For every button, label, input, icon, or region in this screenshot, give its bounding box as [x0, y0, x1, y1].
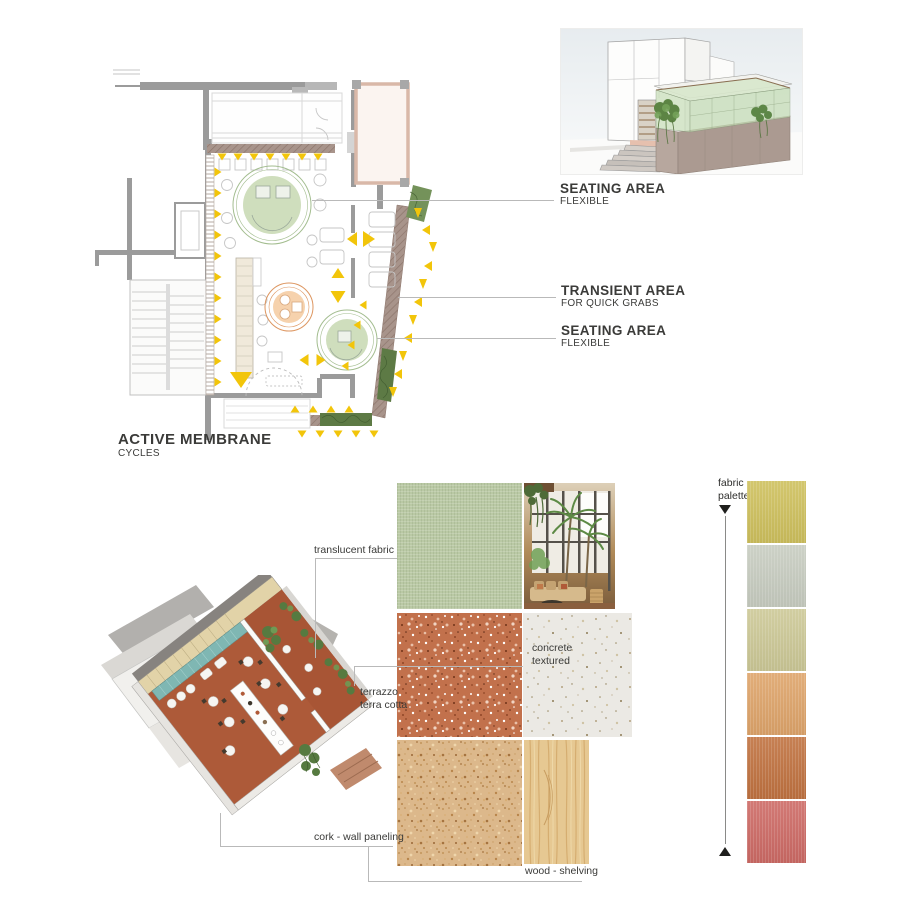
plan-bar-counter: [236, 258, 261, 378]
triangle-down-icon: [719, 505, 731, 514]
annotation-seating-1: SEATING AREA FLEXIBLE: [560, 181, 665, 208]
plan-entry-vestibule: [352, 80, 409, 187]
annotation-title: ACTIVE MEMBRANE: [118, 431, 272, 448]
annotation-title: TRANSIENT AREA: [561, 283, 685, 298]
exterior-render: [560, 28, 803, 175]
label-cork: cork - wall paneling: [314, 831, 404, 844]
annotation-subtitle: FLEXIBLE: [560, 196, 665, 208]
annotation-title: SEATING AREA: [560, 181, 665, 196]
palette-swatch: [747, 673, 806, 735]
label-terrazzo: terrazzo terra cotta: [360, 686, 407, 712]
plan-transient-zone: [265, 283, 313, 331]
floor-plan-drawing: [90, 55, 470, 445]
annotation-subtitle: CYCLES: [118, 448, 272, 460]
annotation-seating-2: SEATING AREA FLEXIBLE: [561, 323, 666, 350]
leader-line-seating-1: [312, 200, 554, 201]
triangle-up-icon: [719, 847, 731, 856]
swatch-terrazzo: [397, 613, 522, 737]
annotation-subtitle: FLEXIBLE: [561, 338, 666, 350]
plan-seating-zone-1: [233, 166, 311, 244]
annotation-membrane: ACTIVE MEMBRANE CYCLES: [118, 431, 272, 460]
plan-terrace-strip: [212, 93, 342, 143]
leader-cork-drop: [220, 813, 221, 846]
annotation-title: SEATING AREA: [561, 323, 666, 338]
leader-line-transient: [398, 297, 556, 298]
plan-seating-zone-2: [317, 310, 377, 370]
palette-swatch: [747, 481, 806, 543]
leader-wood-drop: [368, 846, 369, 881]
plan-stair-core: [130, 203, 206, 395]
leader-concrete: [354, 666, 523, 667]
swatch-concrete: [523, 613, 632, 737]
interior-reference-photo: [524, 483, 615, 609]
label-wood: wood - shelving: [525, 865, 598, 878]
label-translucent-fabric: translucent fabric: [314, 544, 394, 557]
swatch-translucent-fabric: [397, 483, 522, 609]
palette-swatch: [747, 545, 806, 607]
palette-swatch: [747, 737, 806, 799]
leader-translucent-fabric: [315, 558, 397, 559]
annotation-transient: TRANSIENT AREA FOR QUICK GRABS: [561, 283, 685, 310]
palette-axis-line: [725, 516, 726, 844]
label-concrete: concrete textured: [532, 642, 572, 668]
swatch-cork: [397, 740, 522, 866]
palette-swatch: [747, 801, 806, 863]
leader-terrazzo-drop: [354, 666, 355, 686]
leader-line-seating-2: [377, 338, 556, 339]
annotation-subtitle: FOR QUICK GRABS: [561, 298, 685, 310]
label-fabric-palette: fabric palette: [718, 477, 750, 503]
swatch-wood: [524, 740, 589, 864]
leader-wood: [368, 881, 582, 882]
palette-swatch: [747, 609, 806, 671]
fabric-palette-swatches: [747, 481, 806, 863]
leader-translucent-fabric-drop: [315, 558, 316, 658]
